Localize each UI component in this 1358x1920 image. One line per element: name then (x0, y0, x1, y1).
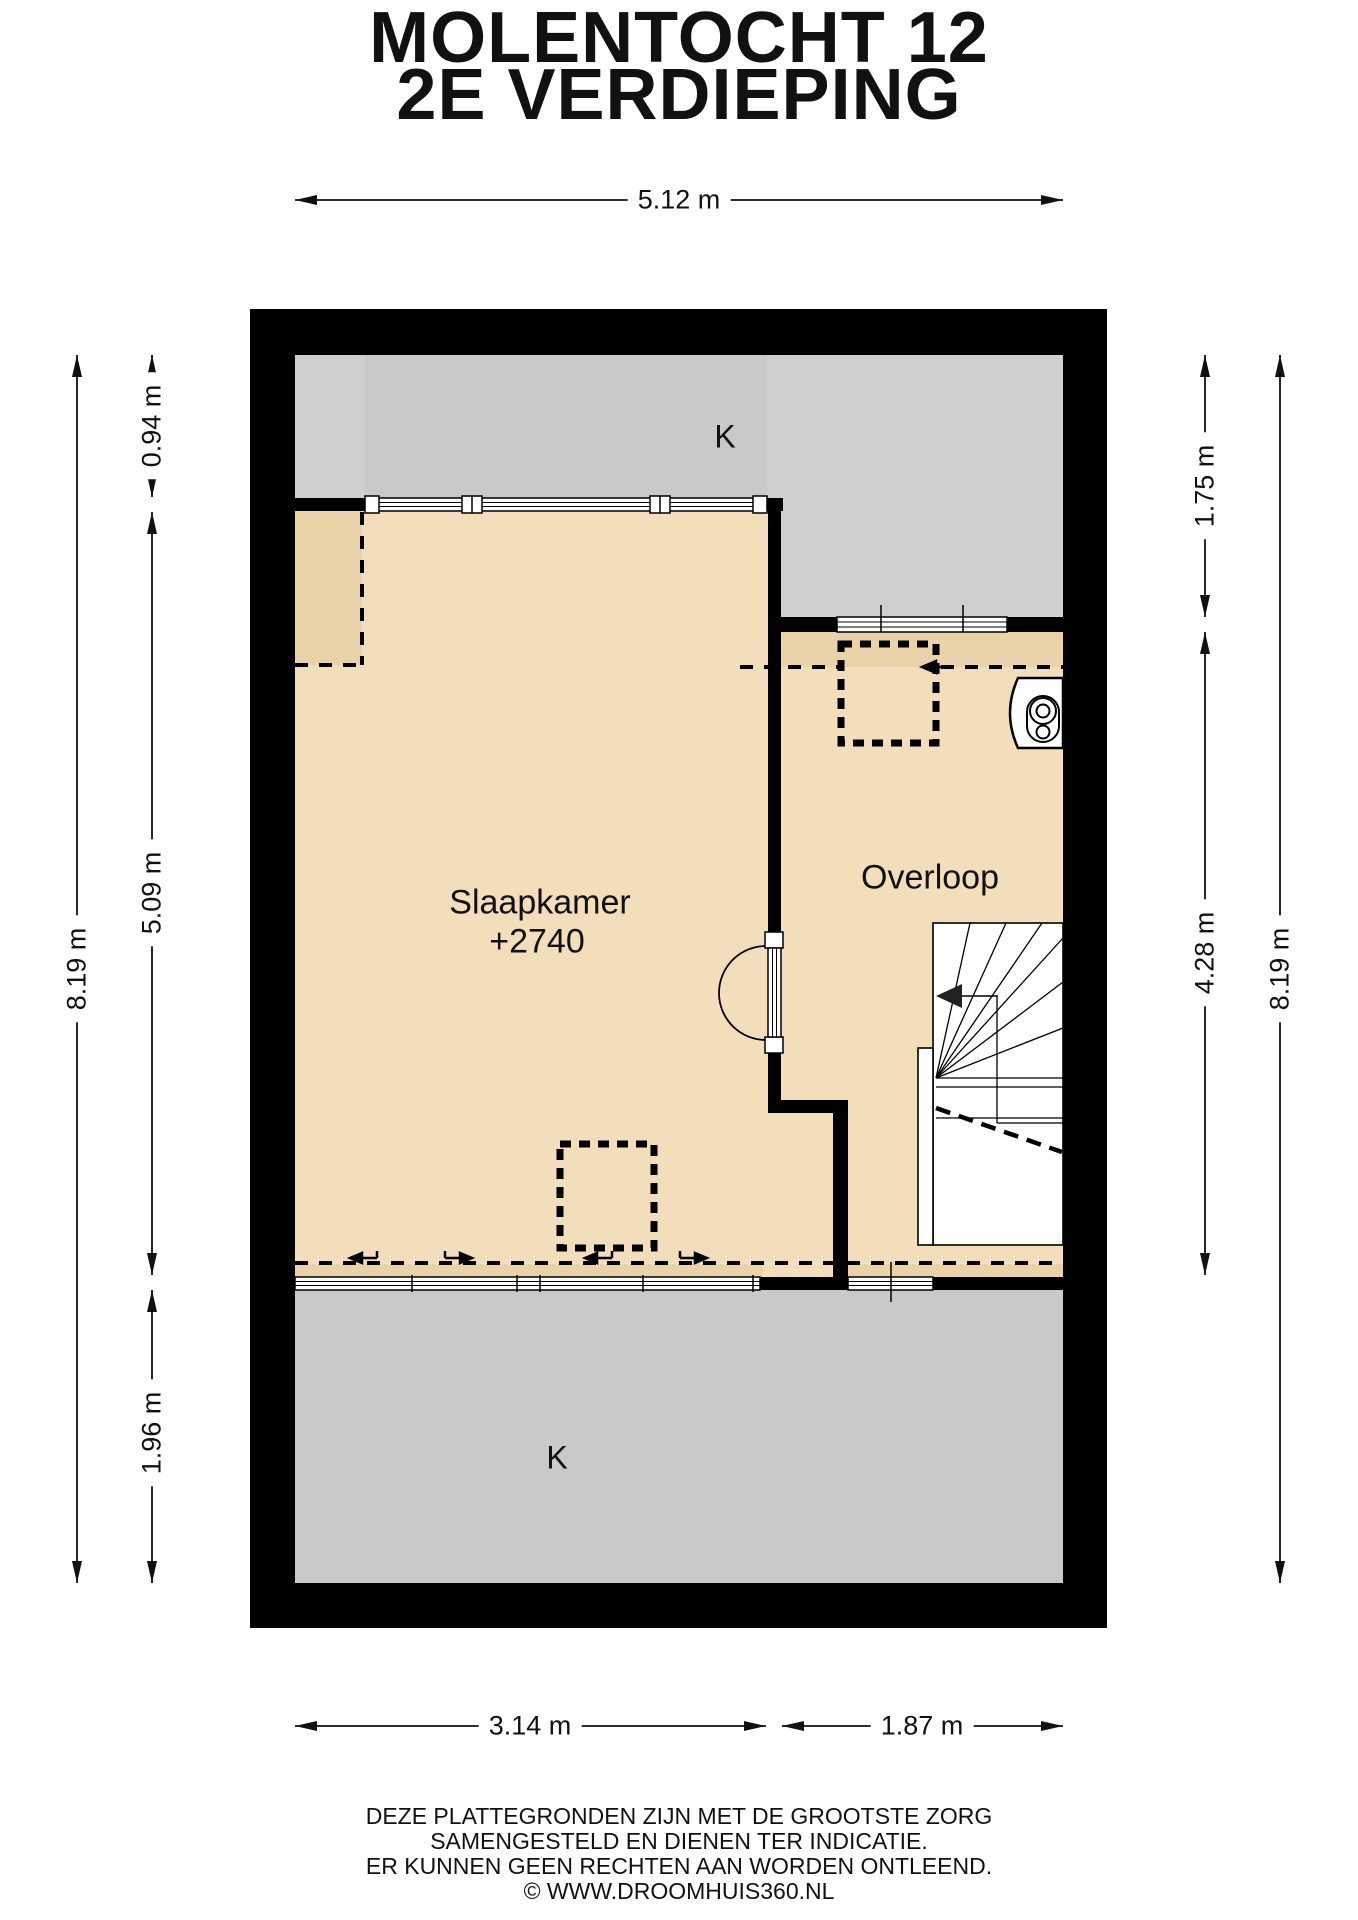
dim-left-outer: 8.19 m (62, 916, 93, 1023)
dim-right-outer: 8.19 m (1265, 916, 1296, 1023)
window-bottom-left (295, 1275, 760, 1292)
dim-bottom-left: 3.14 m (479, 1711, 582, 1742)
stairs-icon (918, 923, 1063, 1245)
footer-line-1: DEZE PLATTEGRONDEN ZIJN MET DE GROOTSTE … (0, 1804, 1358, 1829)
room-overloop-label: Overloop (861, 859, 999, 898)
footer-disclaimer: DEZE PLATTEGRONDEN ZIJN MET DE GROOTSTE … (0, 1804, 1358, 1904)
room-slaapkamer-label: Slaapkamer (449, 884, 630, 923)
dim-right-middle: 4.28 m (1190, 900, 1221, 1007)
attic-bottom-label: K (546, 1440, 567, 1477)
dim-left-top: 0.94 m (137, 373, 168, 480)
window-top-slaapkamer (365, 496, 767, 513)
attic-top-label: K (714, 419, 735, 456)
dim-top-width: 5.12 m (628, 185, 731, 216)
room-slaapkamer-elevation: +2740 (489, 923, 585, 962)
dim-left-middle: 5.09 m (137, 840, 168, 947)
dim-left-bottom: 1.96 m (137, 1380, 168, 1487)
dim-bottom-right: 1.87 m (871, 1711, 974, 1742)
footer-line-2: SAMENGESTELD EN DIENEN TER INDICATIE. (0, 1829, 1358, 1854)
floorplan-drawing (0, 0, 1358, 1920)
footer-line-3: ER KUNNEN GEEN RECHTEN AAN WORDEN ONTLEE… (0, 1854, 1358, 1879)
dim-right-top: 1.75 m (1190, 433, 1221, 540)
boiler-unit-icon (1010, 678, 1063, 748)
footer-line-4: © WWW.DROOMHUIS360.NL (0, 1879, 1358, 1904)
floorplan-page: MOLENTOCHT 12 2E VERDIEPING (0, 0, 1358, 1920)
